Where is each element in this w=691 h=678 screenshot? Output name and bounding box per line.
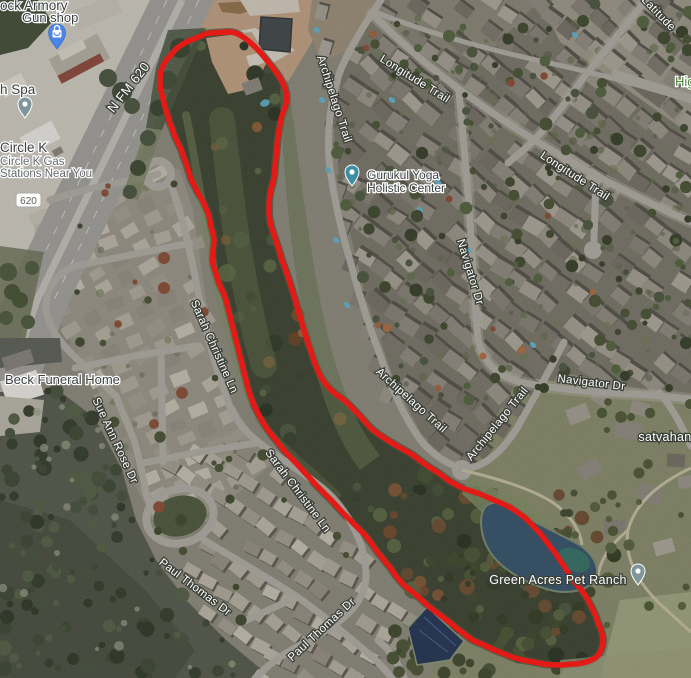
svg-text:satvahan: satvahan: [638, 430, 691, 444]
svg-text:Stations Near You: Stations Near You: [0, 168, 92, 180]
svg-text:h Spa: h Spa: [0, 82, 36, 97]
svg-text:620: 620: [20, 196, 37, 207]
svg-text:Circle K Gas: Circle K Gas: [0, 156, 65, 168]
svg-text:Circle K: Circle K: [0, 140, 47, 155]
svg-text:Gurukul Yoga: Gurukul Yoga: [367, 168, 439, 182]
svg-text:Gun shop: Gun shop: [22, 10, 78, 25]
svg-text:Holistic Center: Holistic Center: [367, 181, 445, 195]
svg-text:Beck Funeral Home: Beck Funeral Home: [5, 372, 120, 387]
svg-text:Green Acres Pet Ranch: Green Acres Pet Ranch: [489, 573, 627, 587]
svg-text:Hig: Hig: [675, 74, 691, 89]
